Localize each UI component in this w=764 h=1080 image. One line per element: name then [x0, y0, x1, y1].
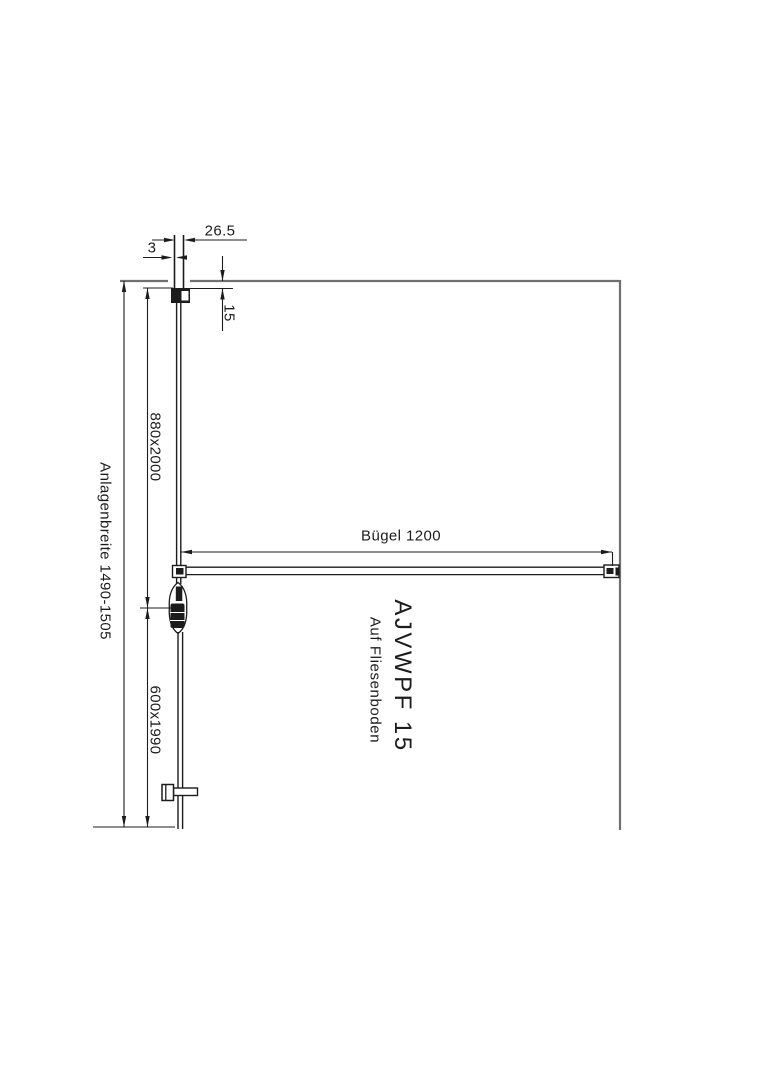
dim-label-door-panel: 600x1990 [147, 685, 164, 754]
drawing-canvas: 26.5 3 15 880x2000 Anlagenbreite 1490-15… [0, 0, 764, 1080]
model-label: AJVWPF 15 [388, 599, 416, 752]
dim-label-fixed-panel: 880x2000 [147, 412, 164, 481]
fixed-panel-glass [177, 303, 181, 584]
wall-profile [171, 235, 190, 303]
door-panel-glass [178, 632, 183, 829]
support-bar [186, 567, 604, 574]
door-handle [162, 785, 198, 801]
bar-wall-bracket [604, 565, 619, 578]
dim-label-gap: 3 [148, 240, 157, 257]
dim-label-total-width: Anlagenbreite 1490-1505 [97, 462, 114, 640]
dim-label-support-bar: Bügel 1200 [361, 528, 441, 545]
bar-glass-bracket [173, 566, 187, 578]
dim-support-bar [181, 550, 613, 566]
floor-note-label: Auf Fliesenboden [367, 617, 384, 743]
dim-label-profile-width: 26.5 [205, 223, 236, 240]
dim-label-wall-offset: 15 [221, 304, 238, 322]
